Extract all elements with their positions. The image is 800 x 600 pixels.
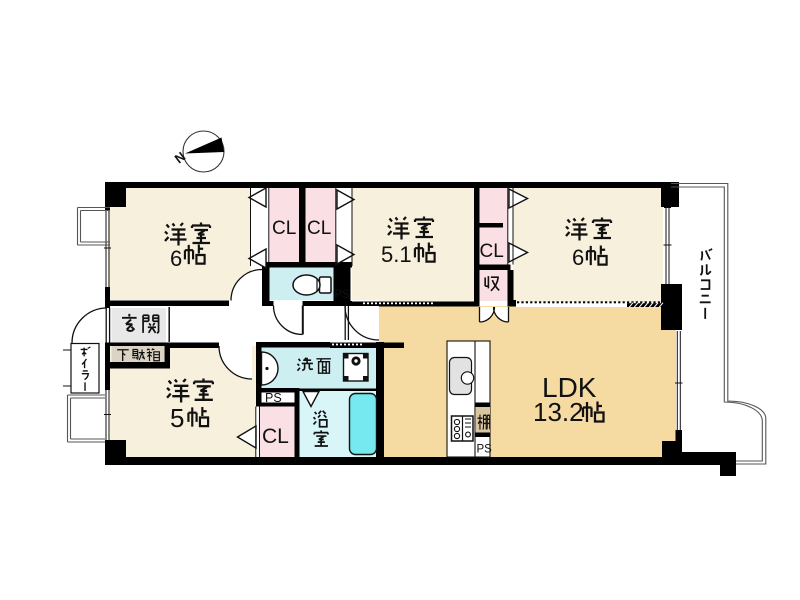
svg-text:6: 6 <box>572 245 584 270</box>
svg-text:PS: PS <box>477 444 493 456</box>
svg-text:CL: CL <box>307 218 331 239</box>
svg-text:CL: CL <box>480 241 504 262</box>
svg-text:5.1: 5.1 <box>381 242 412 267</box>
svg-text:CL: CL <box>262 425 289 448</box>
svg-text:CL: CL <box>272 218 296 239</box>
svg-text:6: 6 <box>170 246 182 271</box>
svg-text:PS: PS <box>335 289 351 301</box>
svg-text:PS: PS <box>265 391 282 405</box>
svg-text:13.2: 13.2 <box>533 397 584 427</box>
svg-text:5: 5 <box>170 403 184 433</box>
